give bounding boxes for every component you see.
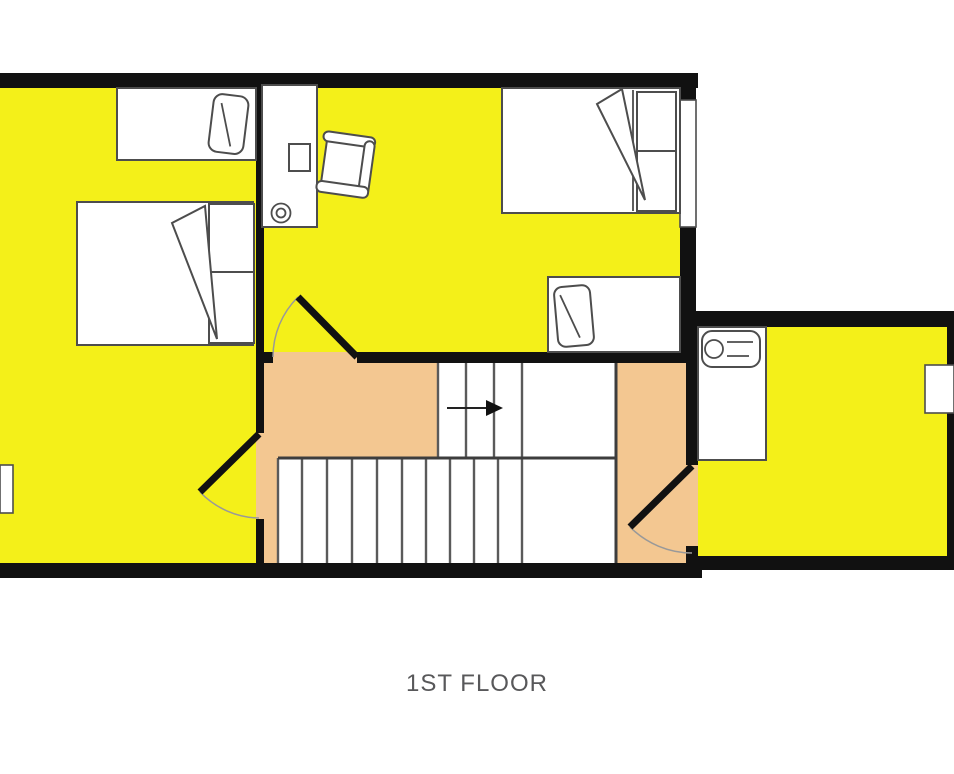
wall-hall-right-upper bbox=[686, 327, 698, 465]
wall-top bbox=[0, 73, 698, 88]
pillow bbox=[553, 285, 594, 348]
desk-middle-room bbox=[262, 85, 317, 227]
double-bed-left-room bbox=[77, 202, 254, 345]
window-right-wall bbox=[680, 100, 696, 227]
wall-bottom bbox=[0, 563, 702, 578]
door-opening-right bbox=[686, 465, 698, 546]
wall-right-upper-stub bbox=[680, 88, 696, 100]
wall-right-room-right-lower bbox=[947, 413, 954, 556]
wall-landing-top bbox=[357, 352, 683, 363]
stair-lower-flight bbox=[278, 458, 616, 563]
door-opening-middle bbox=[273, 352, 357, 363]
landing-floor bbox=[264, 358, 438, 458]
pillow bbox=[702, 331, 760, 367]
wall-right-room-top bbox=[688, 311, 954, 327]
landing-strip-floor bbox=[264, 458, 278, 563]
window-left-wall bbox=[0, 465, 13, 513]
monitor bbox=[289, 144, 310, 171]
single-bed-middle-room bbox=[548, 277, 680, 352]
pillow bbox=[637, 151, 676, 211]
wall-right-room-bottom bbox=[688, 556, 954, 570]
stair-upper-flight bbox=[438, 363, 616, 458]
desk-chair bbox=[316, 131, 376, 199]
wall-landing-stub bbox=[264, 352, 273, 363]
window-bay-right-room bbox=[925, 365, 954, 413]
floorplan-page: 1ST FLOOR bbox=[0, 0, 954, 774]
pillow bbox=[637, 92, 676, 151]
pillow bbox=[208, 93, 250, 155]
floor-label: 1ST FLOOR bbox=[0, 670, 954, 698]
single-bed-left-room bbox=[117, 88, 256, 160]
double-bed-middle-room bbox=[502, 88, 680, 213]
door-opening-left bbox=[256, 433, 264, 519]
pillow bbox=[209, 204, 254, 272]
hall-floor bbox=[616, 363, 686, 563]
wall-left-room-lower bbox=[256, 519, 264, 563]
floorplan-drawing bbox=[0, 0, 954, 774]
single-bed-right-room bbox=[698, 327, 766, 460]
wall-right-room-right-upper bbox=[947, 327, 954, 365]
